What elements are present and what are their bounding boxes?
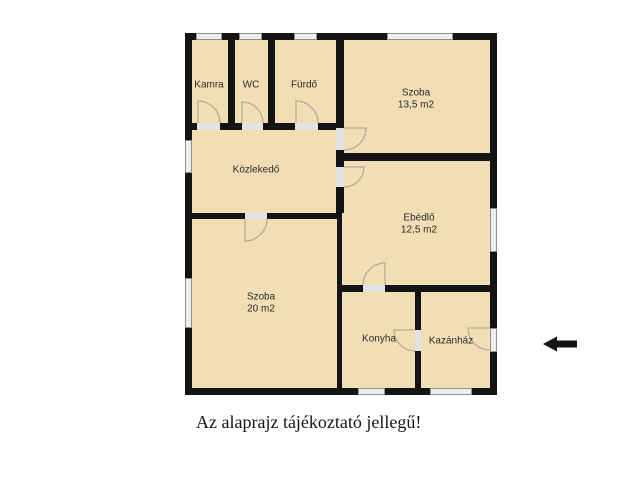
caption: Az alaprajz tájékoztató jellegű! (196, 412, 421, 433)
floor-plan-image: Kamra WC Fürdő Szoba 13,5 m2 Közlekedő E… (0, 0, 640, 480)
arrow-layer (0, 0, 640, 480)
left-arrow-icon (543, 337, 577, 352)
